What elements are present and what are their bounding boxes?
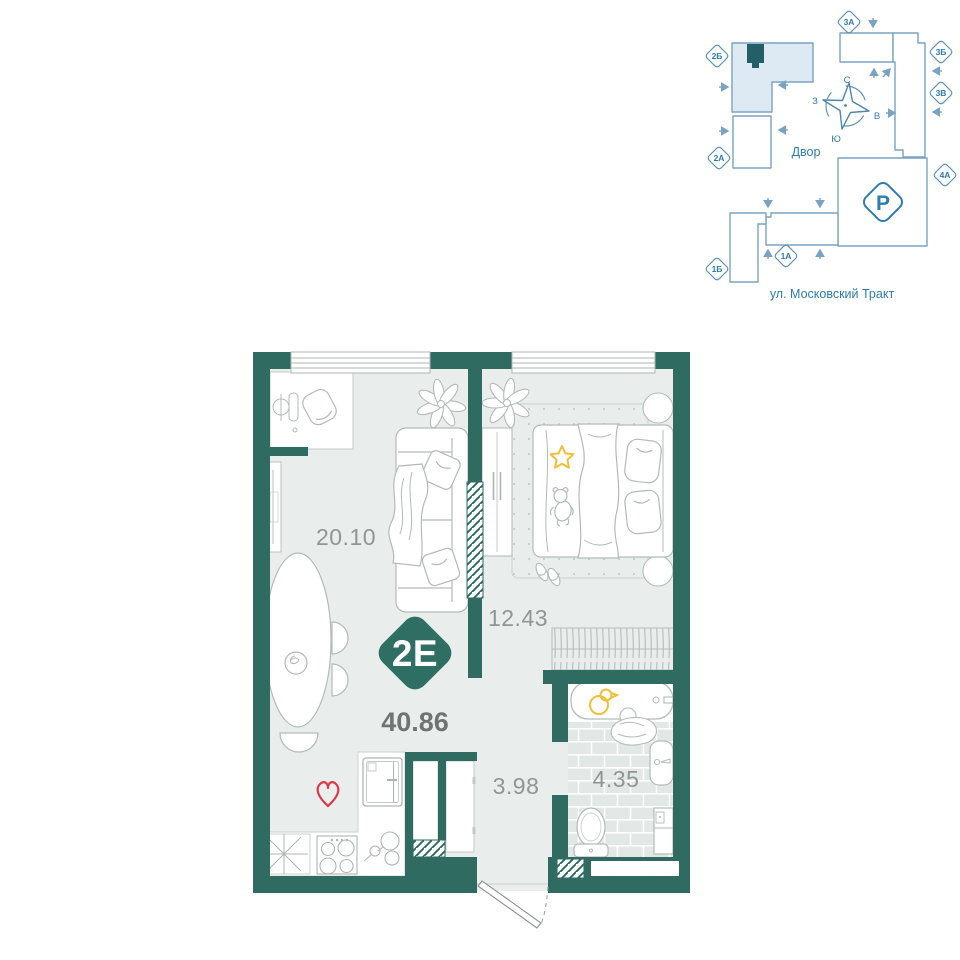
floor-plan: 20.10 12.43 3.98 4.35 2E 40.86 xyxy=(253,352,690,928)
svg-text:1Б: 1Б xyxy=(712,264,723,274)
building-label-1a: 1А xyxy=(774,244,798,268)
parking-label: Р xyxy=(876,192,890,215)
building-label-4a: 4А xyxy=(933,163,957,187)
building-2a-outline xyxy=(733,116,771,168)
site-plan: С З В Ю Р 2Б 2А 3А xyxy=(705,10,957,301)
svg-text:3Б: 3Б xyxy=(936,47,947,57)
svg-text:2А: 2А xyxy=(714,153,725,163)
building-label-3a: 3А xyxy=(837,10,861,34)
compass-north: С xyxy=(844,75,851,86)
svg-text:3В: 3В xyxy=(936,88,947,98)
window xyxy=(512,352,655,373)
washing-machine-icon xyxy=(654,808,673,854)
bedroom-area-label: 12.43 xyxy=(488,605,548,631)
shaft-hatch-partition xyxy=(467,482,483,598)
total-area-label: 40.86 xyxy=(381,707,449,737)
building-3b-3v-outline xyxy=(893,33,925,157)
compass-icon: С З В Ю xyxy=(812,75,880,145)
stove-icon xyxy=(317,836,357,874)
building-label-2b: 2Б xyxy=(705,44,729,68)
plan-canvas: С З В Ю Р 2Б 2А 3А xyxy=(0,0,960,960)
bathroom-sink-icon xyxy=(650,741,673,785)
compass-west: З xyxy=(812,96,818,107)
building-1b-outline xyxy=(730,213,766,282)
living-area-label: 20.10 xyxy=(316,524,376,550)
apartment-type-label: 2E xyxy=(392,633,438,674)
building-label-2a: 2А xyxy=(707,146,731,170)
courtyard-label: Двор xyxy=(792,145,821,159)
closet-icon xyxy=(552,628,684,670)
svg-text:2Б: 2Б xyxy=(712,51,723,61)
fridge-icon xyxy=(363,758,402,806)
nightstand-icon xyxy=(643,556,673,586)
wall-inset xyxy=(591,861,679,876)
desk-area xyxy=(270,372,353,449)
wall-desk-stub xyxy=(270,447,308,456)
partition-living-bedroom xyxy=(468,369,482,482)
building-2b-outline xyxy=(732,43,813,112)
street-label: ул. Московский Тракт xyxy=(770,287,895,301)
nightstand-icon xyxy=(643,393,673,423)
floorplan-page: С З В Ю Р 2Б 2А 3А xyxy=(0,0,960,960)
bathroom-area-label: 4.35 xyxy=(593,766,640,792)
building-label-1b: 1Б xyxy=(705,257,729,281)
wall-bedroom-bottom xyxy=(543,670,690,684)
svg-text:4А: 4А xyxy=(940,170,951,180)
vent-shaft-icon xyxy=(557,859,584,878)
hallway-area-label: 3.98 xyxy=(493,773,540,799)
wardrobe-icon xyxy=(482,428,512,556)
compass-east: В xyxy=(874,111,880,122)
vent-shaft-icon xyxy=(413,840,445,857)
building-label-3b: 3Б xyxy=(929,40,953,64)
building-1a-outline xyxy=(766,213,838,245)
window xyxy=(291,352,430,373)
compass-south: Ю xyxy=(831,134,841,145)
building-label-3v: 3В xyxy=(929,81,953,105)
wall-bathroom-left xyxy=(552,684,568,742)
sofa-icon xyxy=(389,428,468,612)
svg-text:3А: 3А xyxy=(844,17,855,27)
building-3a-outline xyxy=(840,33,893,62)
svg-text:1А: 1А xyxy=(781,251,792,261)
